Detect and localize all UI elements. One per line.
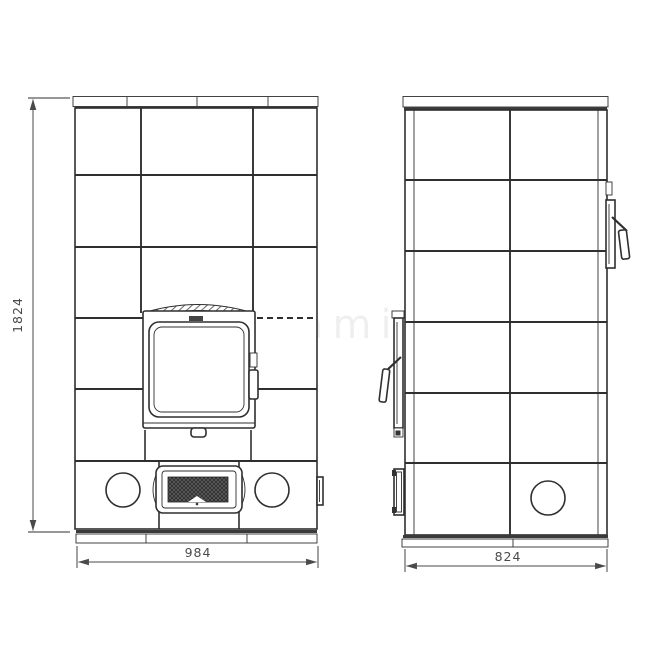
side-plinth (402, 537, 608, 548)
front-view (73, 97, 323, 544)
cap-slab (403, 97, 608, 108)
dimension-front-width: 984 (77, 545, 318, 568)
side-convection-opening (531, 481, 565, 515)
damper-lever-assembly (606, 182, 630, 268)
stove-technical-drawing: Kaminofen (0, 0, 650, 650)
door-hinge (250, 353, 257, 367)
handle-foot-pin (396, 431, 401, 436)
stove-technical-drawing-page: Kaminofen (0, 0, 650, 650)
lever-mount-tab (606, 182, 612, 195)
handle-plate (394, 318, 403, 428)
side-tile-grid (405, 110, 607, 535)
side-top-cap (403, 97, 608, 110)
height-dimension-label: 1824 (10, 297, 25, 333)
ash-latch-assembly (392, 469, 404, 515)
dimension-side-width: 824 (405, 549, 607, 572)
side-lever-front-view (317, 477, 323, 505)
dimension-height: 1824 (10, 98, 70, 532)
lever-plate (606, 200, 615, 268)
door-top-latch (189, 316, 203, 321)
lever-grip (618, 230, 629, 260)
door-glass-outer (149, 322, 249, 417)
side-width-dimension-label: 824 (495, 549, 522, 564)
handle-bracket (392, 311, 404, 318)
convection-opening-right (255, 473, 289, 507)
cap-slab (73, 97, 318, 107)
front-width-dimension-label: 984 (185, 545, 212, 560)
door-bottom-knob (191, 428, 206, 437)
stove-fire-door (143, 311, 258, 437)
front-plinth (76, 532, 317, 544)
handle-grip (379, 369, 390, 403)
vent-damper-pin (196, 503, 199, 506)
front-top-cap (73, 97, 318, 109)
plinth-slab (76, 534, 317, 543)
side-view (379, 97, 630, 548)
plinth-slab (402, 539, 608, 547)
convection-opening-left (106, 473, 140, 507)
latch-pin-top (392, 470, 396, 476)
door-handle (249, 370, 258, 399)
latch-pin-bottom (392, 507, 396, 513)
